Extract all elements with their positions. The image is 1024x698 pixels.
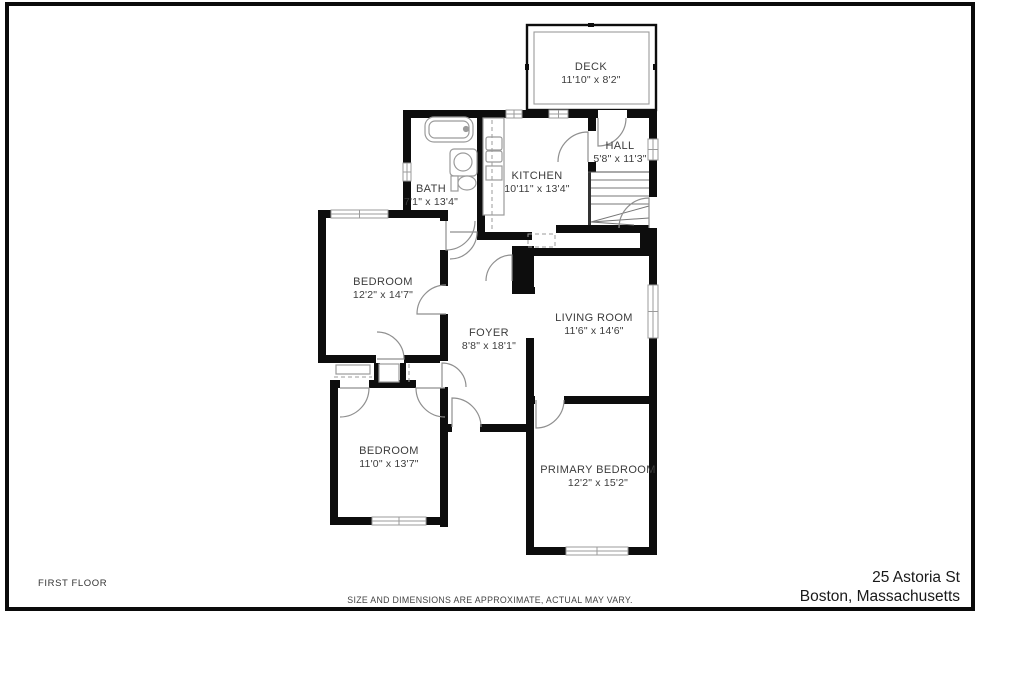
wall-segment	[533, 248, 657, 256]
room-label: DECK	[575, 61, 607, 73]
room-dims: 5'8" x 11'3"	[593, 153, 646, 165]
floor-label: FIRST FLOOR	[38, 578, 107, 589]
stair-winder	[591, 222, 634, 225]
door	[619, 198, 649, 228]
kitchen-sink-basin	[486, 151, 502, 162]
address-line1: 25 Astoria St	[800, 568, 960, 587]
wall-opening	[649, 197, 657, 228]
room-label: HALL	[605, 140, 634, 152]
room-dims: 10'11" x 13'4"	[504, 183, 570, 195]
room-dims: 11'10" x 8'2"	[561, 74, 620, 86]
room-dims: 11'0" x 13'7"	[359, 458, 418, 470]
room-label: BEDROOM	[353, 276, 413, 288]
room-dims: 12'2" x 15'2"	[568, 477, 628, 489]
room-dims: 7'1" x 13'4"	[404, 196, 458, 208]
chimney	[512, 246, 534, 293]
deck-tick	[588, 23, 594, 27]
room-label: FOYER	[469, 327, 509, 339]
kitchen-appliance	[486, 166, 502, 180]
door	[450, 232, 477, 259]
wall-opening	[440, 221, 448, 250]
room-label: BEDROOM	[359, 445, 419, 457]
door	[446, 221, 475, 250]
toilet-bowl	[458, 176, 476, 190]
wall-segment	[330, 380, 338, 525]
room-dims: 8'8" x 18'1"	[462, 340, 516, 352]
toilet-tank	[451, 176, 458, 191]
wall-segment	[526, 396, 534, 555]
kitchen-sink	[486, 137, 502, 150]
stairs-stringer	[588, 172, 591, 225]
wall-segment	[477, 232, 532, 240]
door	[536, 400, 564, 428]
bath-sink	[454, 153, 472, 171]
wall-opening	[452, 424, 480, 432]
deck-tick	[525, 64, 529, 70]
room-label: LIVING ROOM	[555, 312, 633, 324]
door	[486, 255, 512, 281]
wall-segment	[440, 387, 448, 527]
room-label: KITCHEN	[511, 170, 562, 182]
wall-opening	[340, 380, 369, 388]
wall-segment	[400, 363, 406, 383]
wall-segment	[556, 225, 657, 233]
tub-faucet	[464, 127, 469, 132]
deck-tick	[653, 64, 657, 70]
wall-opening	[598, 110, 627, 118]
wall-opening	[440, 361, 448, 387]
closet-shelf	[336, 365, 370, 374]
room-label: BATH	[416, 183, 446, 195]
address-line2: Boston, Massachusetts	[800, 587, 960, 606]
wall-segment	[526, 338, 534, 403]
room-label: PRIMARY BEDROOM	[540, 464, 656, 476]
cased-opening	[528, 234, 555, 247]
address: 25 Astoria St Boston, Massachusetts	[800, 568, 960, 606]
wall-opening	[440, 286, 448, 314]
door	[377, 332, 404, 359]
room-dims: 11'6" x 14'6"	[564, 325, 623, 337]
door	[340, 388, 369, 417]
door	[558, 132, 588, 162]
wall-opening	[535, 396, 564, 404]
closet-cell	[379, 364, 399, 382]
door	[452, 398, 481, 427]
room-dims: 12'2" x 14'7"	[353, 289, 413, 301]
wall-segment	[318, 210, 326, 363]
wall-segment	[649, 233, 657, 555]
